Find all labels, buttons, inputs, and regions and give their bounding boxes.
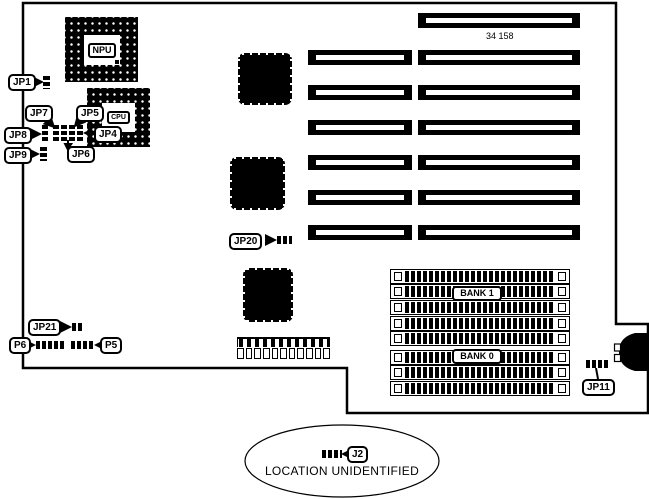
qfp-chip [230, 157, 285, 210]
label-jp5: JP5 [76, 105, 104, 122]
simm-socket [390, 365, 570, 380]
p6-connector [36, 341, 64, 349]
simm-clip [394, 272, 402, 281]
cpu-jumper-pins [69, 125, 75, 143]
bank0-label: BANK 0 [452, 349, 502, 364]
pin-header-cell [280, 348, 287, 359]
simm-clip [394, 303, 402, 312]
pin-header-cell [297, 348, 304, 359]
expansion-slot-long [418, 225, 580, 240]
pin-header-connector [237, 337, 330, 359]
pin-header-cell [263, 348, 270, 359]
label-p5: P5 [100, 337, 122, 354]
cpu-jumper-pins [61, 125, 67, 143]
expansion-slot-long [418, 50, 580, 65]
jp9-jumper [40, 147, 47, 161]
label-jp7: JP7 [25, 105, 53, 122]
npu-label: NPU [88, 43, 115, 58]
expansion-slot-short [308, 50, 412, 65]
simm-clip [558, 303, 566, 312]
cpu-label: CPU [107, 111, 130, 124]
cpu-jumper-pins [77, 125, 83, 143]
expansion-slot-long [418, 155, 580, 170]
cpu-jumper-pins [42, 125, 48, 143]
label-j2: J2 [347, 446, 368, 463]
qfp-chip [243, 268, 293, 322]
motherboard-diagram: NPU CPU 34 158 BANK 1 BANK 0 LOCATION UN… [0, 0, 649, 499]
keyboard-connector-notch [615, 355, 621, 362]
expansion-slot-long [418, 13, 580, 28]
j2-connector [322, 450, 342, 458]
simm-clip [558, 287, 566, 296]
pin-header-cell [254, 348, 261, 359]
label-jp11: JP11 [582, 379, 615, 396]
pin-header-cell [289, 348, 296, 359]
expansion-slot-long [418, 120, 580, 135]
simm-socket [390, 300, 570, 315]
p5-connector [71, 341, 94, 349]
part-number: 34 158 [486, 31, 514, 42]
simm-clip [558, 272, 566, 281]
label-jp20: JP20 [229, 233, 262, 250]
pin-header-cell [323, 348, 330, 359]
simm-clip [394, 334, 402, 343]
expansion-slot-short [308, 85, 412, 100]
label-jp1: JP1 [8, 74, 36, 91]
simm-clip [394, 353, 402, 362]
label-jp9: JP9 [4, 147, 32, 164]
simm-clip [558, 319, 566, 328]
npu-socket-center: NPU [84, 35, 120, 65]
label-p6: P6 [9, 337, 31, 354]
pin-header-cell [272, 348, 279, 359]
expansion-slot-short [308, 190, 412, 205]
label-jp6: JP6 [67, 146, 95, 163]
expansion-slot-short [308, 155, 412, 170]
label-jp21: JP21 [28, 319, 61, 336]
cpu-jumper-pins [53, 125, 59, 143]
pin-header-pins [237, 337, 330, 347]
simm-socket [390, 331, 570, 346]
simm-clip [394, 384, 402, 393]
pin-header-cells [237, 348, 330, 359]
simm-clip [558, 384, 566, 393]
simm-clip [394, 287, 402, 296]
label-jp4: JP4 [94, 126, 122, 143]
label-jp8: JP8 [4, 127, 32, 144]
npu-socket: NPU [65, 17, 138, 82]
pin-header-cell [306, 348, 313, 359]
simm-socket [390, 381, 570, 396]
simm-clip [558, 353, 566, 362]
jp20-jumper [277, 236, 292, 244]
location-balloon [245, 425, 439, 497]
qfp-chip [238, 53, 292, 105]
expansion-slot-short [308, 120, 412, 135]
expansion-slot-long [418, 85, 580, 100]
pin-header-cell [315, 348, 322, 359]
simm-socket [390, 316, 570, 331]
simm-clip [558, 368, 566, 377]
simm-clip [558, 334, 566, 343]
simm-clip [394, 368, 402, 377]
pin-header-cell [246, 348, 253, 359]
pin-header-cell [237, 348, 244, 359]
jp1-jumper [43, 76, 50, 89]
bank1-label: BANK 1 [452, 286, 502, 301]
pin1-marker [115, 60, 119, 64]
location-note: LOCATION UNIDENTIFIED [244, 464, 440, 478]
simm-clip [394, 319, 402, 328]
jp11-connector [586, 360, 608, 368]
expansion-slot-long [418, 190, 580, 205]
simm-socket [390, 269, 570, 284]
jp21-jumper [72, 323, 84, 331]
expansion-slot-short [308, 225, 412, 240]
keyboard-connector-notch [615, 344, 621, 351]
